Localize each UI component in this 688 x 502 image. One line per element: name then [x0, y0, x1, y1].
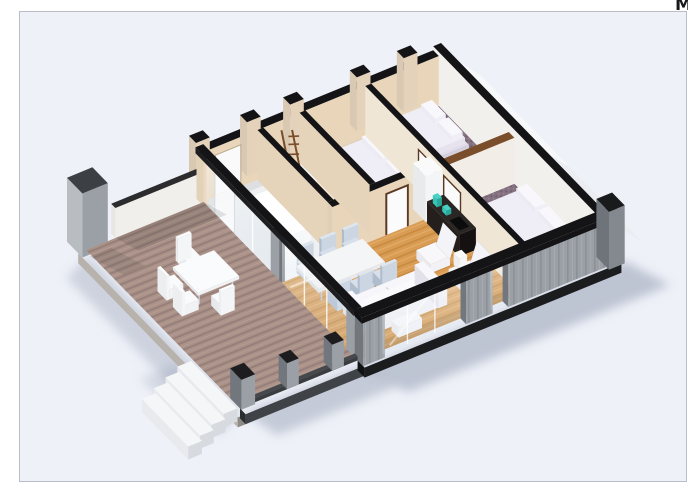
outdoor-chair-1-back-sw	[176, 237, 178, 263]
floorplan-3d-render	[0, 0, 688, 502]
page: M	[0, 0, 688, 502]
outdoor-chair-4-back-sw	[219, 289, 221, 315]
deck-pier-1-se	[287, 358, 299, 389]
terrace-parapet-sw	[111, 204, 115, 238]
outdoor-chair-3-back-se	[182, 291, 185, 316]
deck-pier-corner-se	[241, 374, 255, 410]
nw-pier-3-sw	[350, 70, 357, 131]
nw-pier-4-sw	[397, 51, 404, 112]
facade-wall-1-sw	[358, 316, 364, 366]
facade-corner-block-se	[609, 205, 625, 269]
nw-pier-4-se	[404, 53, 418, 113]
glass-wall-post-n-sw	[197, 153, 204, 206]
deck-pier-2-se	[332, 340, 344, 371]
outdoor-chair-2-back-se	[167, 275, 170, 300]
door-bedroom-center	[387, 187, 407, 235]
corner-glyph-text: M	[675, 0, 688, 15]
